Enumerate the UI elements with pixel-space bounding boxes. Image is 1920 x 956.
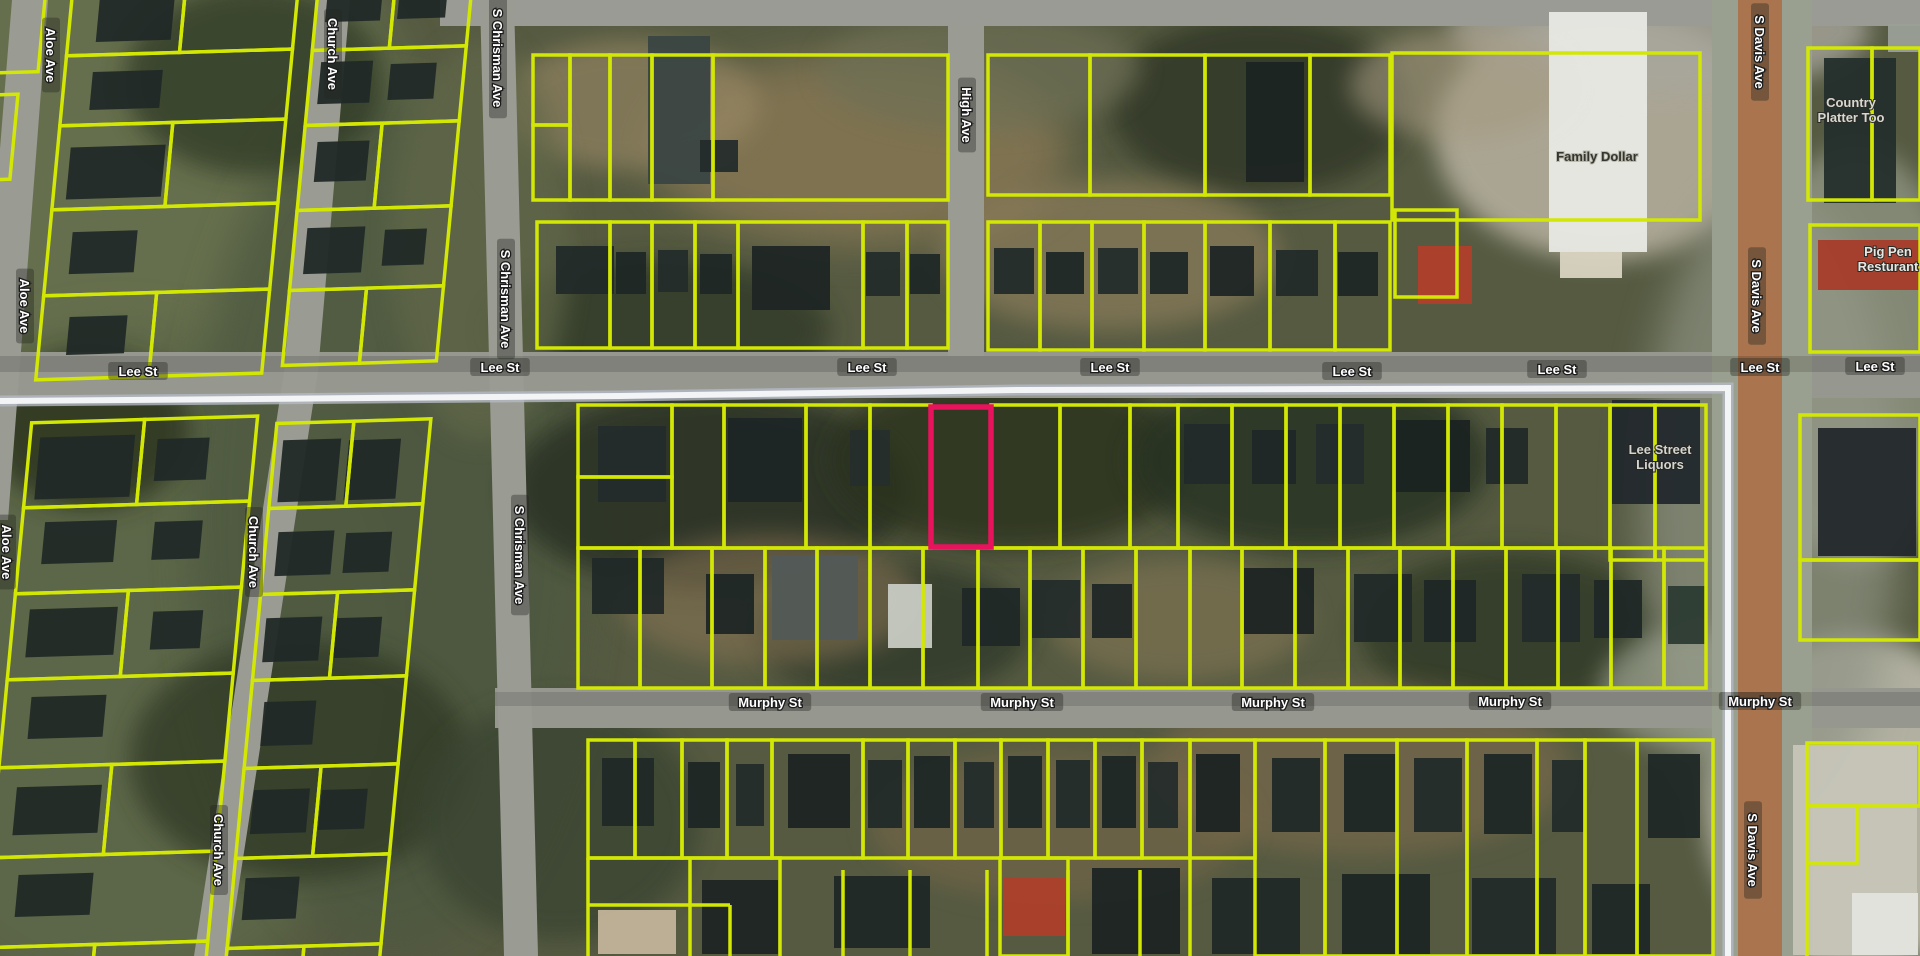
building (1102, 756, 1136, 828)
street-label-group: S Chrisman Ave (497, 239, 515, 359)
building (994, 248, 1034, 294)
building (274, 530, 334, 576)
building (616, 252, 646, 294)
business-label: Family Dollar (1556, 149, 1638, 164)
street-label-group: S Davis Ave (1751, 3, 1769, 101)
street-label: S Chrisman Ave (512, 506, 527, 605)
street-label-group: Church Ave (324, 9, 342, 99)
street-label: Aloe Ave (0, 525, 14, 580)
building (1056, 760, 1090, 828)
building (772, 556, 858, 640)
street-label-group: Lee St (1322, 362, 1382, 380)
building (868, 760, 902, 828)
street-label-group: Murphy St (981, 693, 1063, 711)
building (154, 437, 210, 481)
street-label: Lee St (1740, 360, 1780, 375)
building (962, 588, 1020, 646)
building (1150, 252, 1188, 294)
building (910, 254, 940, 294)
street-label: Lee St (847, 360, 887, 375)
street-label-group: Church Ave (245, 507, 263, 597)
street-label: S Davis Ave (1749, 259, 1764, 332)
street-label: High Ave (959, 87, 974, 142)
street-label-group: Lee St (1845, 357, 1905, 375)
building (658, 250, 688, 292)
high-ave-roadway (948, 26, 984, 356)
street-label: Aloe Ave (43, 28, 58, 83)
building (387, 63, 436, 100)
building (592, 558, 664, 614)
building (556, 246, 614, 294)
top-street (440, 0, 1920, 26)
building (66, 315, 128, 355)
building (1272, 758, 1320, 832)
street-label: Murphy St (1478, 694, 1542, 709)
business-label: Resturant (1858, 259, 1919, 274)
business-label: Country (1826, 95, 1877, 110)
building (602, 758, 654, 826)
building (1484, 754, 1532, 834)
building (1244, 568, 1314, 634)
street-label-group: S Chrisman Ave (511, 495, 529, 615)
building (397, 0, 448, 19)
road-shade (495, 692, 1920, 706)
street-label-group: Lee St (1730, 358, 1790, 376)
building (1592, 884, 1650, 954)
street-label: Murphy St (1728, 694, 1792, 709)
building (736, 764, 764, 826)
building (1092, 868, 1180, 954)
street-label-group: Lee St (1080, 358, 1140, 376)
building (382, 229, 427, 266)
terrain-patch (620, 535, 920, 665)
building (1824, 58, 1896, 203)
street-label: S Chrisman Ave (498, 250, 513, 349)
street-label-group: Lee St (470, 358, 530, 376)
street-label: S Davis Ave (1752, 15, 1767, 88)
building (1668, 586, 1706, 644)
building (250, 788, 310, 834)
building (1046, 252, 1084, 294)
building (1344, 754, 1396, 832)
building (1552, 760, 1584, 832)
building (1184, 424, 1232, 484)
building (1342, 874, 1430, 954)
building (1210, 246, 1254, 296)
building (69, 230, 138, 274)
street-label: Lee St (1090, 360, 1130, 375)
building (1338, 252, 1378, 296)
street-label-group: High Ave (958, 78, 976, 153)
street-label: Murphy St (1241, 695, 1305, 710)
street-label-group: Lee St (1527, 360, 1587, 378)
street-label-group: Murphy St (729, 693, 811, 711)
building (834, 876, 930, 948)
building (151, 520, 203, 559)
street-label-group: S Davis Ave (1748, 247, 1766, 345)
building (314, 140, 370, 182)
terrain-patch (1350, 30, 1570, 140)
street-label: Aloe Ave (17, 279, 32, 334)
building (12, 785, 102, 836)
building (1092, 584, 1132, 638)
building (1032, 580, 1080, 638)
building (688, 762, 720, 828)
street-label-group: Aloe Ave (16, 269, 34, 344)
street-label: S Davis Ave (1745, 813, 1760, 886)
business-label: Pig Pen (1864, 244, 1912, 259)
building (866, 252, 900, 296)
building (1522, 574, 1580, 642)
street-label-group: Church Ave (210, 805, 228, 895)
building (788, 754, 850, 828)
street-label: Lee St (118, 364, 158, 379)
building (1648, 754, 1700, 838)
street-label: Lee St (480, 360, 520, 375)
building (96, 0, 175, 42)
building (303, 226, 365, 274)
building (318, 789, 368, 830)
building (1003, 878, 1065, 936)
street-label: S Chrisman Ave (490, 9, 505, 108)
building (1098, 248, 1138, 294)
street-label-group: Lee St (108, 362, 168, 380)
building (700, 140, 738, 172)
street-label: Church Ave (211, 814, 226, 886)
building (1852, 893, 1918, 955)
building (914, 756, 950, 828)
building (1560, 252, 1622, 278)
street-label: Church Ave (325, 18, 340, 90)
street-label-group: Aloe Ave (42, 18, 60, 93)
building (964, 762, 994, 828)
building (1008, 756, 1042, 828)
street-label-group: Murphy St (1469, 692, 1551, 710)
satellite-map-canvas[interactable]: Lee StLee StLee StLee StLee StLee StLee … (0, 0, 1920, 956)
building (260, 700, 316, 746)
street-label-group: S Davis Ave (1744, 801, 1762, 899)
building (1246, 62, 1304, 182)
building (1594, 580, 1642, 638)
building (332, 617, 382, 658)
building (1148, 762, 1178, 828)
building (598, 910, 676, 954)
building (262, 617, 322, 663)
building (1252, 430, 1296, 484)
building (15, 873, 94, 917)
building (752, 246, 830, 310)
building (41, 520, 117, 564)
building (1472, 878, 1556, 954)
building (342, 532, 392, 573)
street-label-group: Aloe Ave (0, 515, 16, 590)
building (1818, 428, 1916, 556)
business-label: Lee Street (1629, 442, 1693, 457)
street-label-group: Murphy St (1232, 693, 1314, 711)
building (1196, 754, 1240, 832)
building (888, 584, 932, 648)
building (89, 70, 163, 110)
building (34, 435, 135, 500)
business-label: Liquors (1636, 457, 1684, 472)
street-label: Lee St (1332, 364, 1372, 379)
map-layers: Lee StLee StLee StLee StLee StLee StLee … (0, 0, 1920, 956)
building (1424, 580, 1476, 642)
street-label: Lee St (1537, 362, 1577, 377)
building (1354, 574, 1412, 642)
street-label-group: S Chrisman Ave (489, 0, 507, 118)
street-label-group: Lee St (837, 358, 897, 376)
building (1392, 420, 1470, 492)
building (1549, 12, 1647, 252)
building (277, 438, 341, 502)
street-label: Lee St (1855, 359, 1895, 374)
business-label: Platter Too (1818, 110, 1885, 125)
street-label: Murphy St (990, 695, 1054, 710)
street-label: Church Ave (246, 516, 261, 588)
building (1414, 758, 1462, 832)
street-label: Murphy St (738, 695, 802, 710)
building (702, 880, 778, 954)
building (598, 426, 666, 502)
building (25, 607, 118, 658)
building (28, 695, 107, 739)
building (66, 145, 166, 200)
building (1276, 250, 1318, 296)
building (150, 610, 204, 650)
building (728, 418, 802, 502)
street-label-group: Murphy St (1719, 692, 1801, 710)
building (700, 254, 732, 294)
building (242, 876, 300, 920)
building (1486, 428, 1528, 484)
